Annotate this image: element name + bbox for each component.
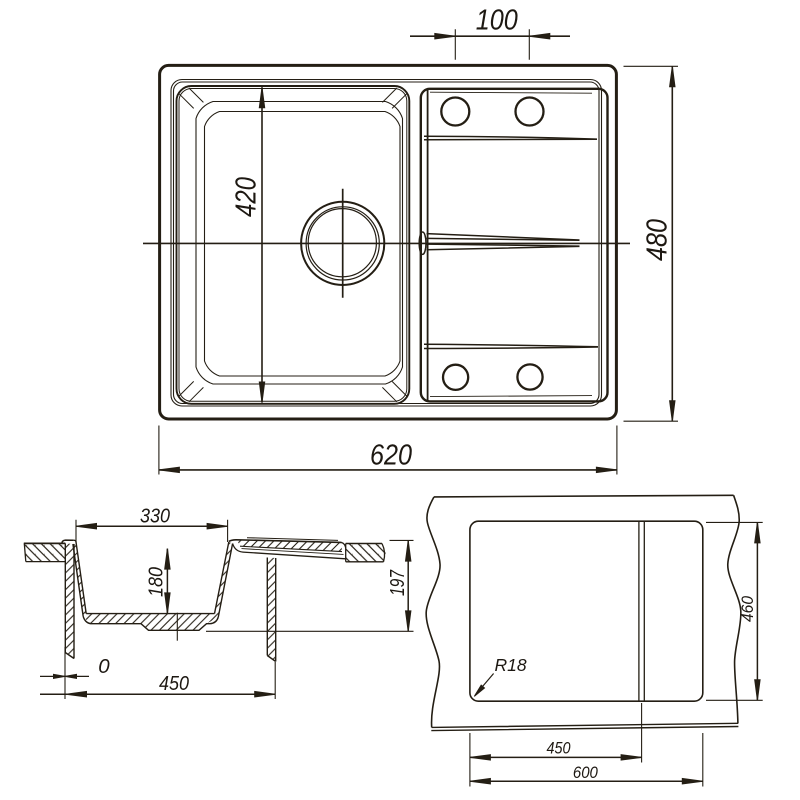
svg-text:0: 0 bbox=[98, 655, 110, 678]
svg-text:100: 100 bbox=[476, 5, 518, 37]
svg-text:330: 330 bbox=[140, 505, 171, 528]
svg-text:197: 197 bbox=[386, 569, 409, 596]
svg-text:480: 480 bbox=[642, 219, 674, 261]
svg-text:620: 620 bbox=[370, 439, 412, 471]
svg-text:460: 460 bbox=[739, 596, 757, 622]
svg-text:R18: R18 bbox=[495, 655, 527, 675]
svg-text:450: 450 bbox=[547, 739, 571, 757]
svg-text:600: 600 bbox=[573, 764, 598, 782]
svg-text:450: 450 bbox=[159, 672, 190, 695]
svg-text:420: 420 bbox=[231, 177, 263, 217]
svg-text:180: 180 bbox=[144, 566, 167, 597]
